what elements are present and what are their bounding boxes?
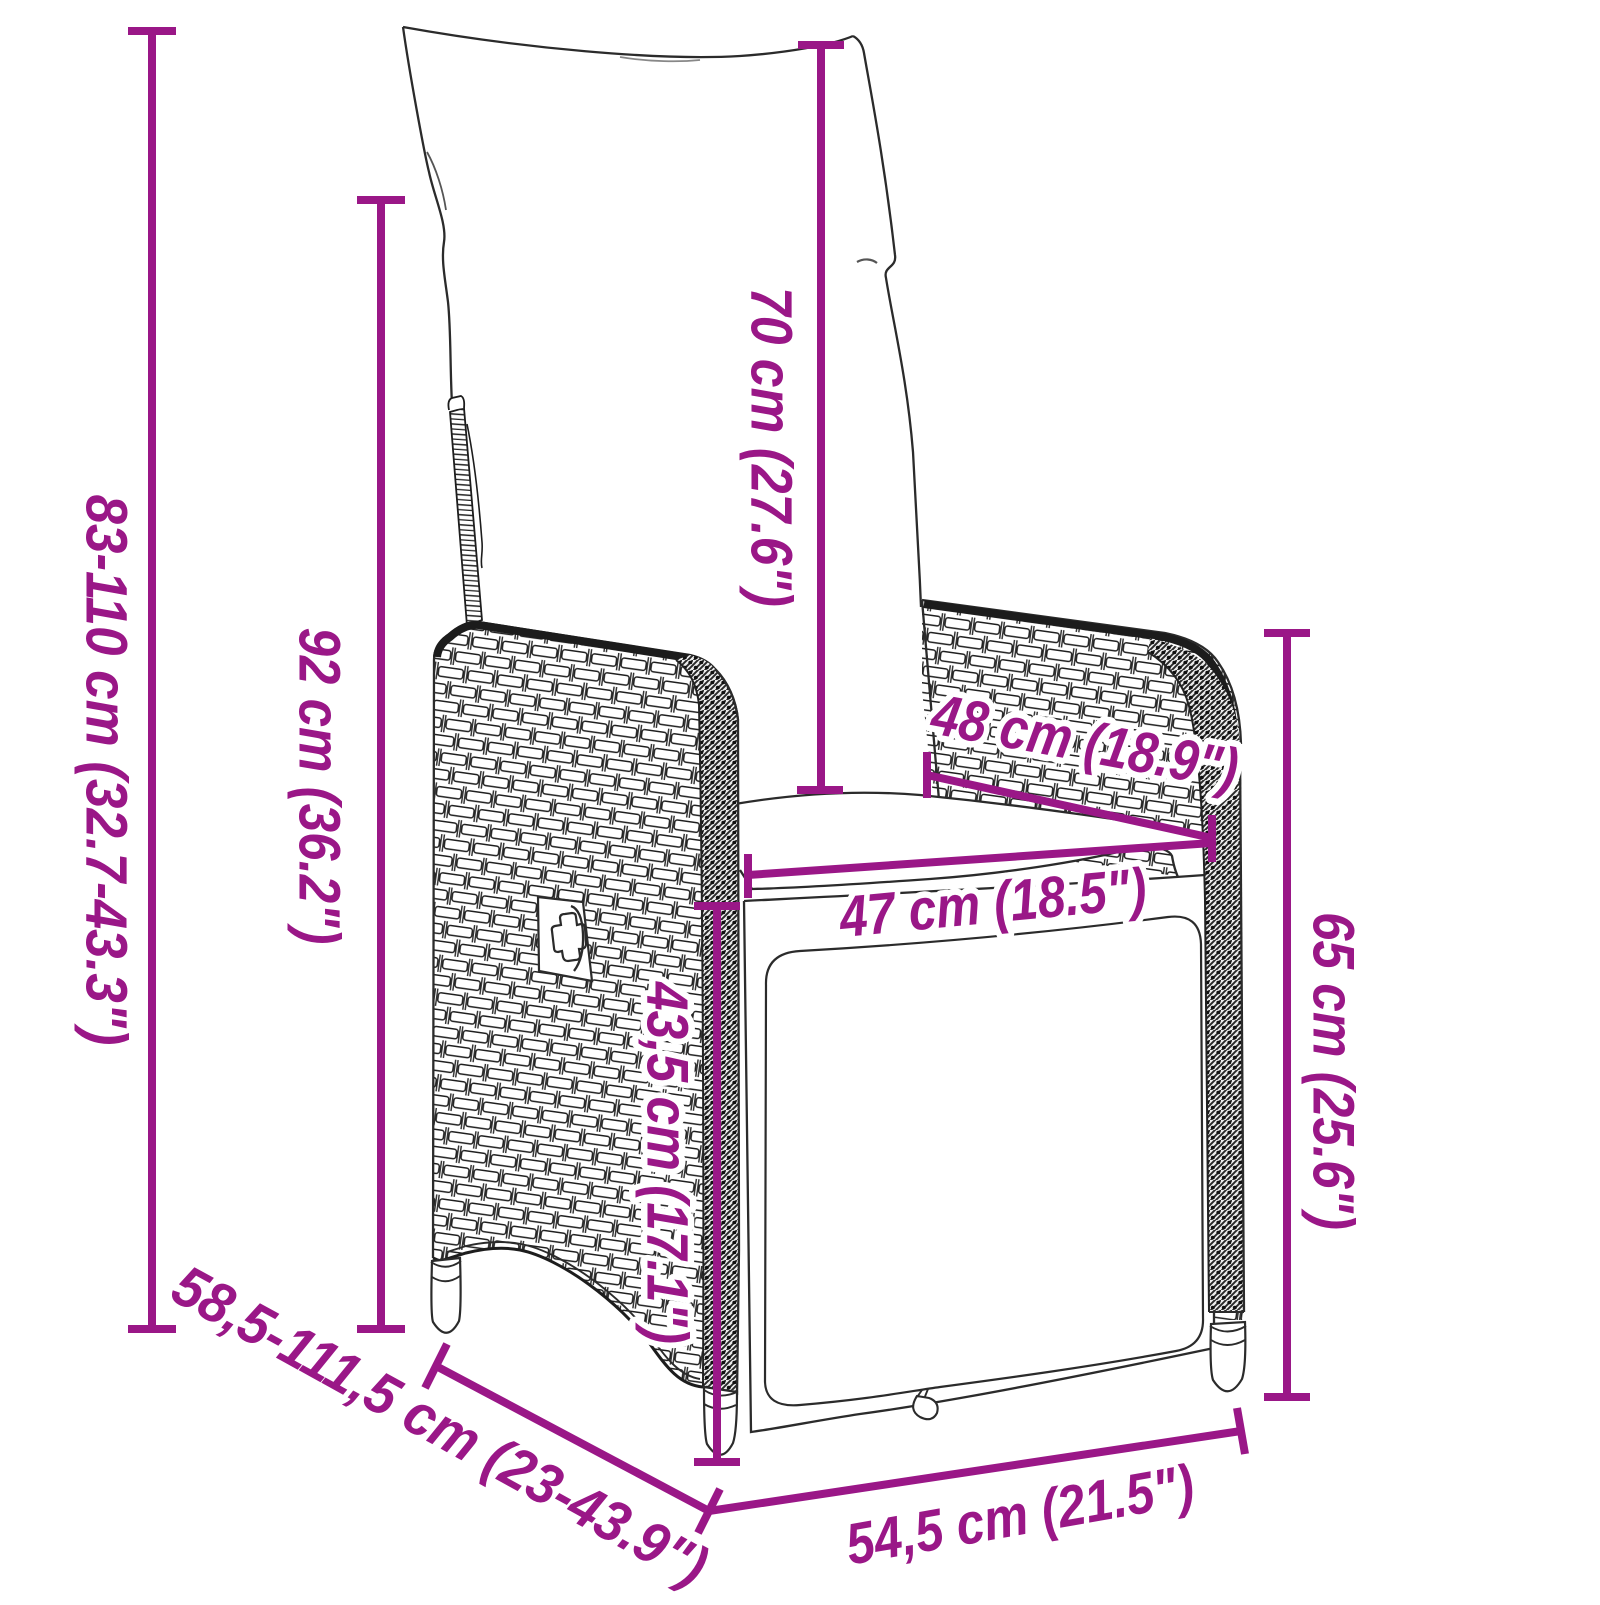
svg-text:43,5 cm (17.1"): 43,5 cm (17.1") (635, 981, 700, 1344)
svg-text:70 cm (27.6"): 70 cm (27.6") (739, 287, 804, 607)
svg-text:65 cm (25.6"): 65 cm (25.6") (1301, 912, 1366, 1230)
svg-text:92 cm (36.2"): 92 cm (36.2") (287, 628, 352, 945)
svg-text:83-110 cm (32.7-43.3"): 83-110 cm (32.7-43.3") (74, 495, 139, 1046)
